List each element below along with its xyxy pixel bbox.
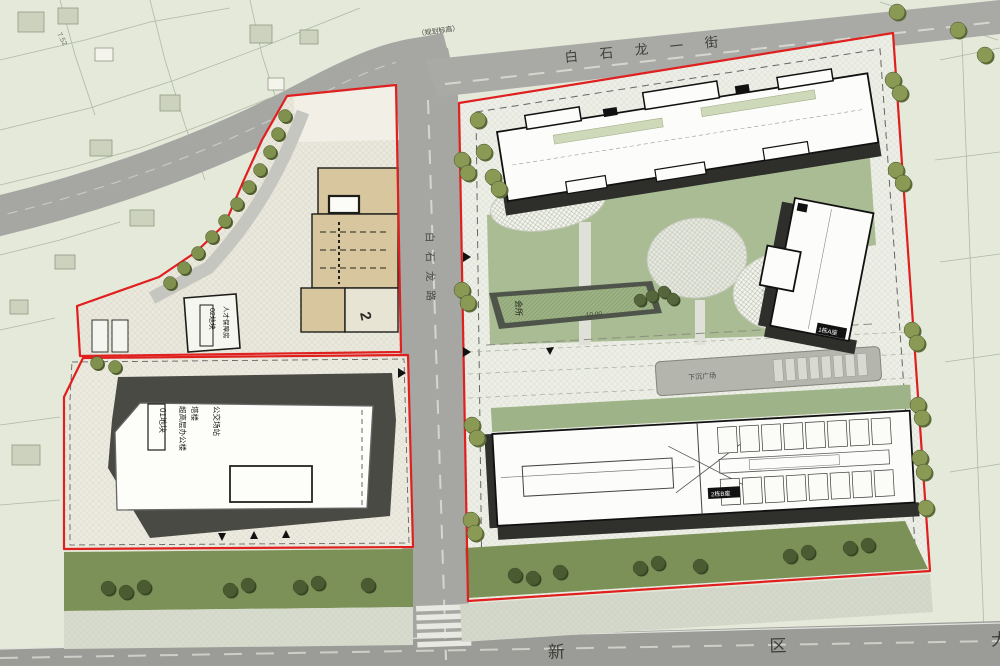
clubhouse-label: 会所 <box>514 300 524 316</box>
middle-road-label: 白石龙路 <box>423 232 437 310</box>
plot01-line2: 塔楼 <box>190 406 200 421</box>
site-plan-drawing: 7.52 02地块 <box>0 0 1000 666</box>
plot02-label: 02地块 <box>208 308 217 330</box>
plot03-parcel: 消防登高车场地 消防登高车场地 会所 10.00 下沉广场 3. <box>459 33 933 642</box>
plot01-line1: 超高层办公楼 <box>178 406 188 451</box>
plot02-sublabel: 人才保障房 <box>222 306 231 339</box>
plot01-line3: 公交场站 <box>212 406 222 436</box>
building-block-b: 2栋B座 <box>483 384 920 540</box>
plot01-label: 01地块 <box>158 408 168 433</box>
plot01-tower <box>115 403 373 510</box>
plot02-podium-c <box>301 288 345 332</box>
plot01-sidewalk-hatch <box>64 607 413 649</box>
plot01-lawn <box>64 549 413 611</box>
site-plan-canvas: 7.52 02地块 <box>0 0 1000 666</box>
clubhouse-elevation: 10.00 <box>586 311 603 319</box>
plot02-podium-b <box>312 214 398 288</box>
plot02-core-box <box>329 196 359 213</box>
plot01-parcel: 01地块 超高层办公楼 塔楼 公交场站 <box>64 355 413 649</box>
